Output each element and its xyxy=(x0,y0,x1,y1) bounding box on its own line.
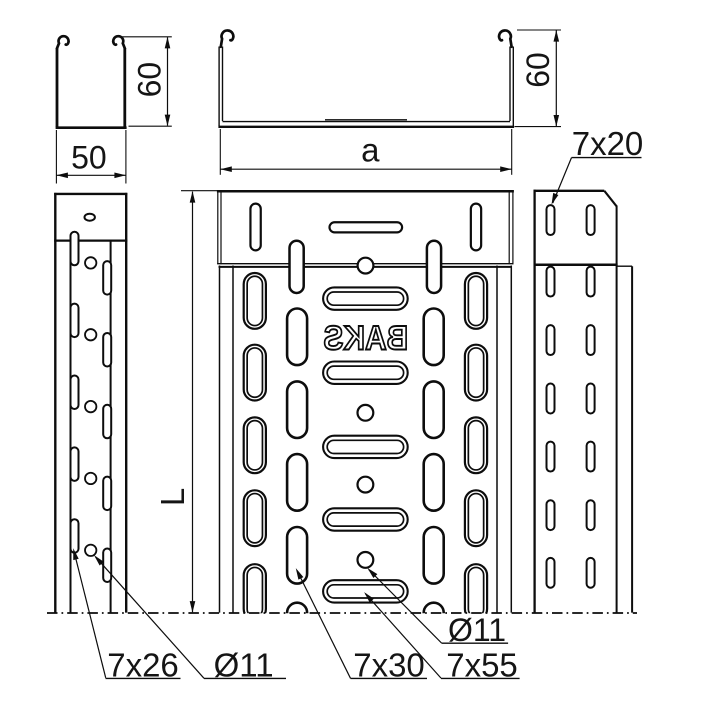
svg-text:Ø11: Ø11 xyxy=(448,612,506,648)
svg-text:Ø11: Ø11 xyxy=(214,646,274,683)
svg-text:7x30: 7x30 xyxy=(353,646,425,683)
svg-text:7x26: 7x26 xyxy=(107,646,179,683)
svg-text:60: 60 xyxy=(132,62,168,98)
svg-text:a: a xyxy=(361,131,380,168)
svg-text:50: 50 xyxy=(71,139,107,175)
svg-text:7x55: 7x55 xyxy=(446,646,518,683)
svg-text:7x20: 7x20 xyxy=(572,125,644,162)
svg-text:BAKS: BAKS xyxy=(323,319,408,357)
svg-text:60: 60 xyxy=(520,52,556,88)
svg-text:L: L xyxy=(154,488,191,506)
